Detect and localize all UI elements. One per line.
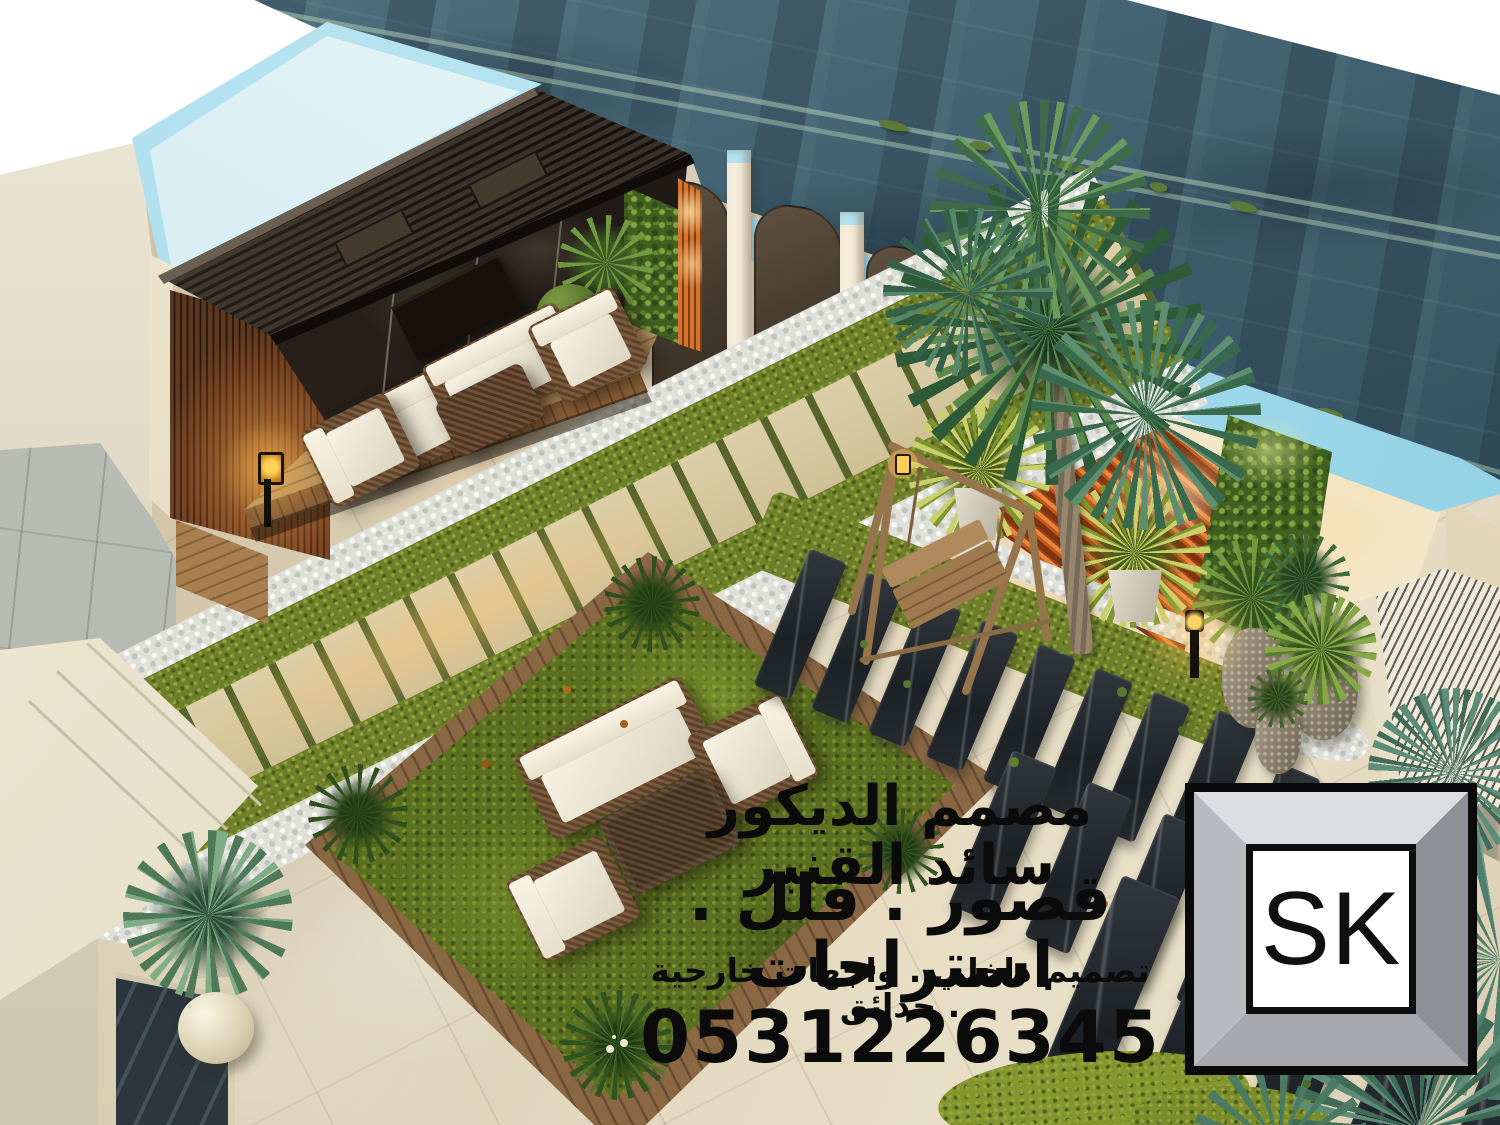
sk-logo: SK: [1185, 783, 1477, 1075]
bollard-light: [1185, 610, 1204, 632]
grass-tuft: [604, 556, 700, 652]
wall-lantern: [258, 452, 284, 485]
palm-frond-crown: [1031, 300, 1261, 530]
lantern-post: [264, 479, 271, 527]
succulent: [1248, 668, 1308, 728]
palm-frond-crown: [883, 207, 1053, 377]
sk-logo-text: SK: [1246, 844, 1416, 1014]
leaf-scatter: [0, 0, 4, 4]
tuft-flowers: [612, 1035, 616, 1039]
watermark-phone-number: 0531226345: [640, 1000, 1160, 1076]
grass-tuft: [308, 764, 408, 864]
sphere-lamp: [178, 992, 254, 1064]
agave-plant: [123, 830, 293, 1000]
courtyard-3d-render: مصمم الديكور سائد القنبر قصور . فلل . اس…: [0, 0, 1500, 1125]
bollard-post: [1190, 630, 1199, 678]
